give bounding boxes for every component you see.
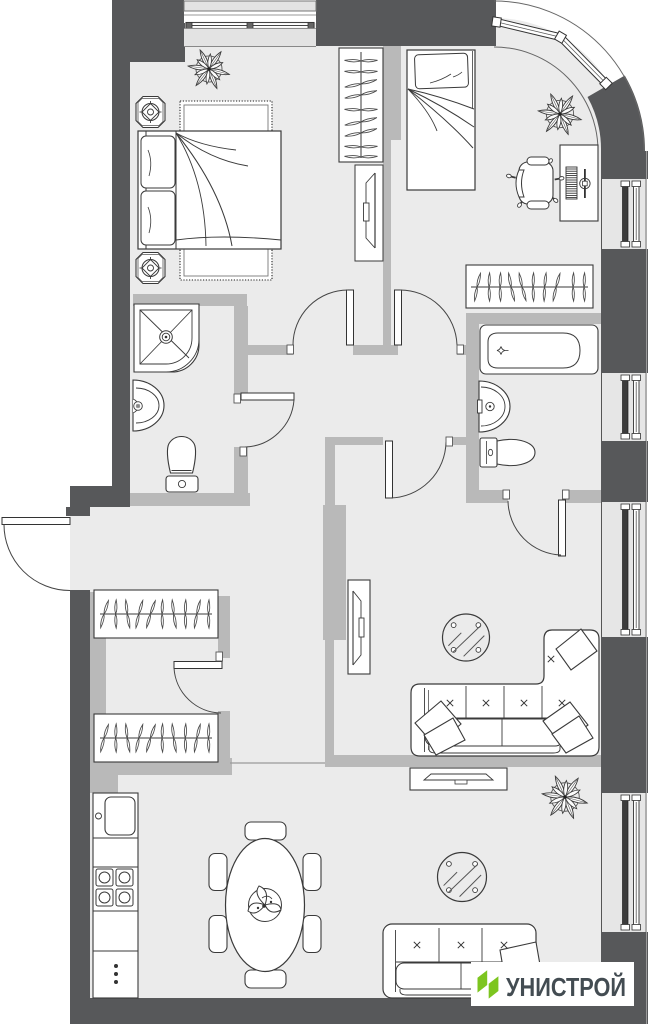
- svg-text:УНИСТРОЙ: УНИСТРОЙ: [506, 972, 626, 1002]
